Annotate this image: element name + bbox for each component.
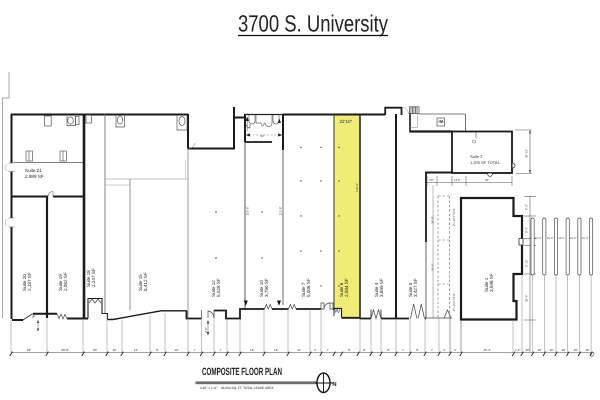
svg-text:7': 7' bbox=[402, 348, 405, 352]
svg-text:20'-8": 20'-8" bbox=[61, 348, 69, 352]
svg-text:7': 7' bbox=[193, 348, 196, 352]
svg-text:8': 8' bbox=[416, 348, 419, 352]
svg-text:6': 6' bbox=[363, 348, 366, 352]
svg-text:5': 5' bbox=[443, 348, 446, 352]
svg-text:12': 12' bbox=[274, 348, 278, 352]
svg-text:5,028 SF: 5,028 SF bbox=[216, 278, 221, 297]
svg-text:1/16" = 1'-0" 46,844 SQ. FT: 1/16" = 1'-0" 46,844 SQ. FT. TOTAL LEASE… bbox=[200, 386, 274, 390]
svg-text:12': 12' bbox=[113, 348, 117, 352]
svg-text:2,584 SF: 2,584 SF bbox=[344, 278, 349, 297]
svg-text:12': 12' bbox=[175, 348, 179, 352]
svg-text:10': 10' bbox=[562, 348, 566, 352]
svg-text:PLANTER: PLANTER bbox=[452, 208, 456, 226]
svg-text:119'-8": 119'-8" bbox=[355, 183, 359, 192]
svg-text:12': 12' bbox=[250, 348, 254, 352]
svg-text:Suite 21: Suite 21 bbox=[25, 168, 42, 173]
svg-text:8,412 SF: 8,412 SF bbox=[143, 272, 148, 291]
svg-text:4'-0": 4'-0" bbox=[204, 327, 208, 333]
svg-text:36'-9": 36'-9" bbox=[431, 216, 435, 224]
svg-text:5': 5' bbox=[454, 348, 457, 352]
svg-text:2,082 SF: 2,082 SF bbox=[63, 272, 68, 291]
svg-text:PLANTER: PLANTER bbox=[452, 293, 456, 311]
svg-text:8': 8' bbox=[387, 348, 390, 352]
svg-text:7': 7' bbox=[326, 348, 329, 352]
svg-text:39': 39' bbox=[485, 178, 489, 182]
svg-text:2,989 SF: 2,989 SF bbox=[25, 174, 44, 179]
svg-text:11': 11' bbox=[297, 348, 301, 352]
svg-text:22': 22' bbox=[27, 348, 31, 352]
svg-text:14'2": 14'2" bbox=[454, 178, 461, 182]
svg-text:10': 10' bbox=[585, 348, 589, 352]
svg-text:8'-4": 8'-4" bbox=[524, 227, 528, 233]
svg-text:119'-8": 119'-8" bbox=[245, 206, 249, 215]
svg-text:20': 20' bbox=[93, 348, 97, 352]
svg-text:113'-8": 113'-8" bbox=[278, 206, 282, 215]
svg-text:10'-0": 10'-0" bbox=[570, 237, 577, 240]
svg-text:Suite 2: Suite 2 bbox=[470, 154, 483, 159]
svg-text:45'-4": 45'-4" bbox=[483, 348, 491, 352]
svg-text:8': 8' bbox=[348, 348, 351, 352]
svg-text:1,200 SF TOTAL: 1,200 SF TOTAL bbox=[470, 160, 501, 165]
svg-text:5,006 SF: 5,006 SF bbox=[306, 278, 311, 297]
svg-text:22'10": 22'10" bbox=[340, 119, 353, 124]
svg-text:8': 8' bbox=[156, 348, 159, 352]
svg-text:10'-0": 10'-0" bbox=[582, 237, 589, 240]
svg-text:2,187 SF: 2,187 SF bbox=[27, 272, 32, 291]
svg-text:32': 32' bbox=[261, 134, 265, 138]
svg-text:10'-0": 10'-0" bbox=[535, 237, 542, 240]
svg-text:8'-10": 8'-10" bbox=[524, 259, 528, 267]
svg-text:10'-0": 10'-0" bbox=[547, 237, 554, 240]
svg-text:10': 10' bbox=[526, 348, 530, 352]
svg-text:5'-0": 5'-0" bbox=[524, 204, 528, 210]
svg-text:COMPOSITE FLOOR PLAN: COMPOSITE FLOOR PLAN bbox=[202, 366, 282, 378]
svg-text:3,598 SF: 3,598 SF bbox=[489, 273, 494, 292]
svg-text:30'-4": 30'-4" bbox=[524, 294, 528, 302]
svg-text:3700 S. University: 3700 S. University bbox=[238, 11, 388, 37]
svg-text:10': 10' bbox=[574, 348, 578, 352]
svg-text:7': 7' bbox=[431, 348, 434, 352]
svg-text:3,790 SF: 3,790 SF bbox=[264, 278, 269, 297]
svg-text:7': 7' bbox=[219, 348, 222, 352]
svg-text:7'-4": 7'-4" bbox=[515, 348, 521, 352]
svg-text:3'6": 3'6" bbox=[429, 178, 434, 182]
svg-text:14': 14' bbox=[134, 348, 138, 352]
svg-text:N: N bbox=[332, 381, 336, 388]
svg-text:24'-6": 24'-6" bbox=[431, 263, 435, 271]
svg-text:2,247 SF: 2,247 SF bbox=[91, 268, 96, 287]
svg-text:3,427 SF: 3,427 SF bbox=[413, 278, 418, 297]
svg-text:3,899 SF: 3,899 SF bbox=[379, 278, 384, 297]
svg-text:5': 5' bbox=[314, 348, 317, 352]
svg-text:10'-0": 10'-0" bbox=[558, 237, 565, 240]
svg-text:10': 10' bbox=[550, 348, 554, 352]
svg-text:30'-10": 30'-10" bbox=[524, 149, 528, 158]
svg-text:10': 10' bbox=[538, 348, 542, 352]
